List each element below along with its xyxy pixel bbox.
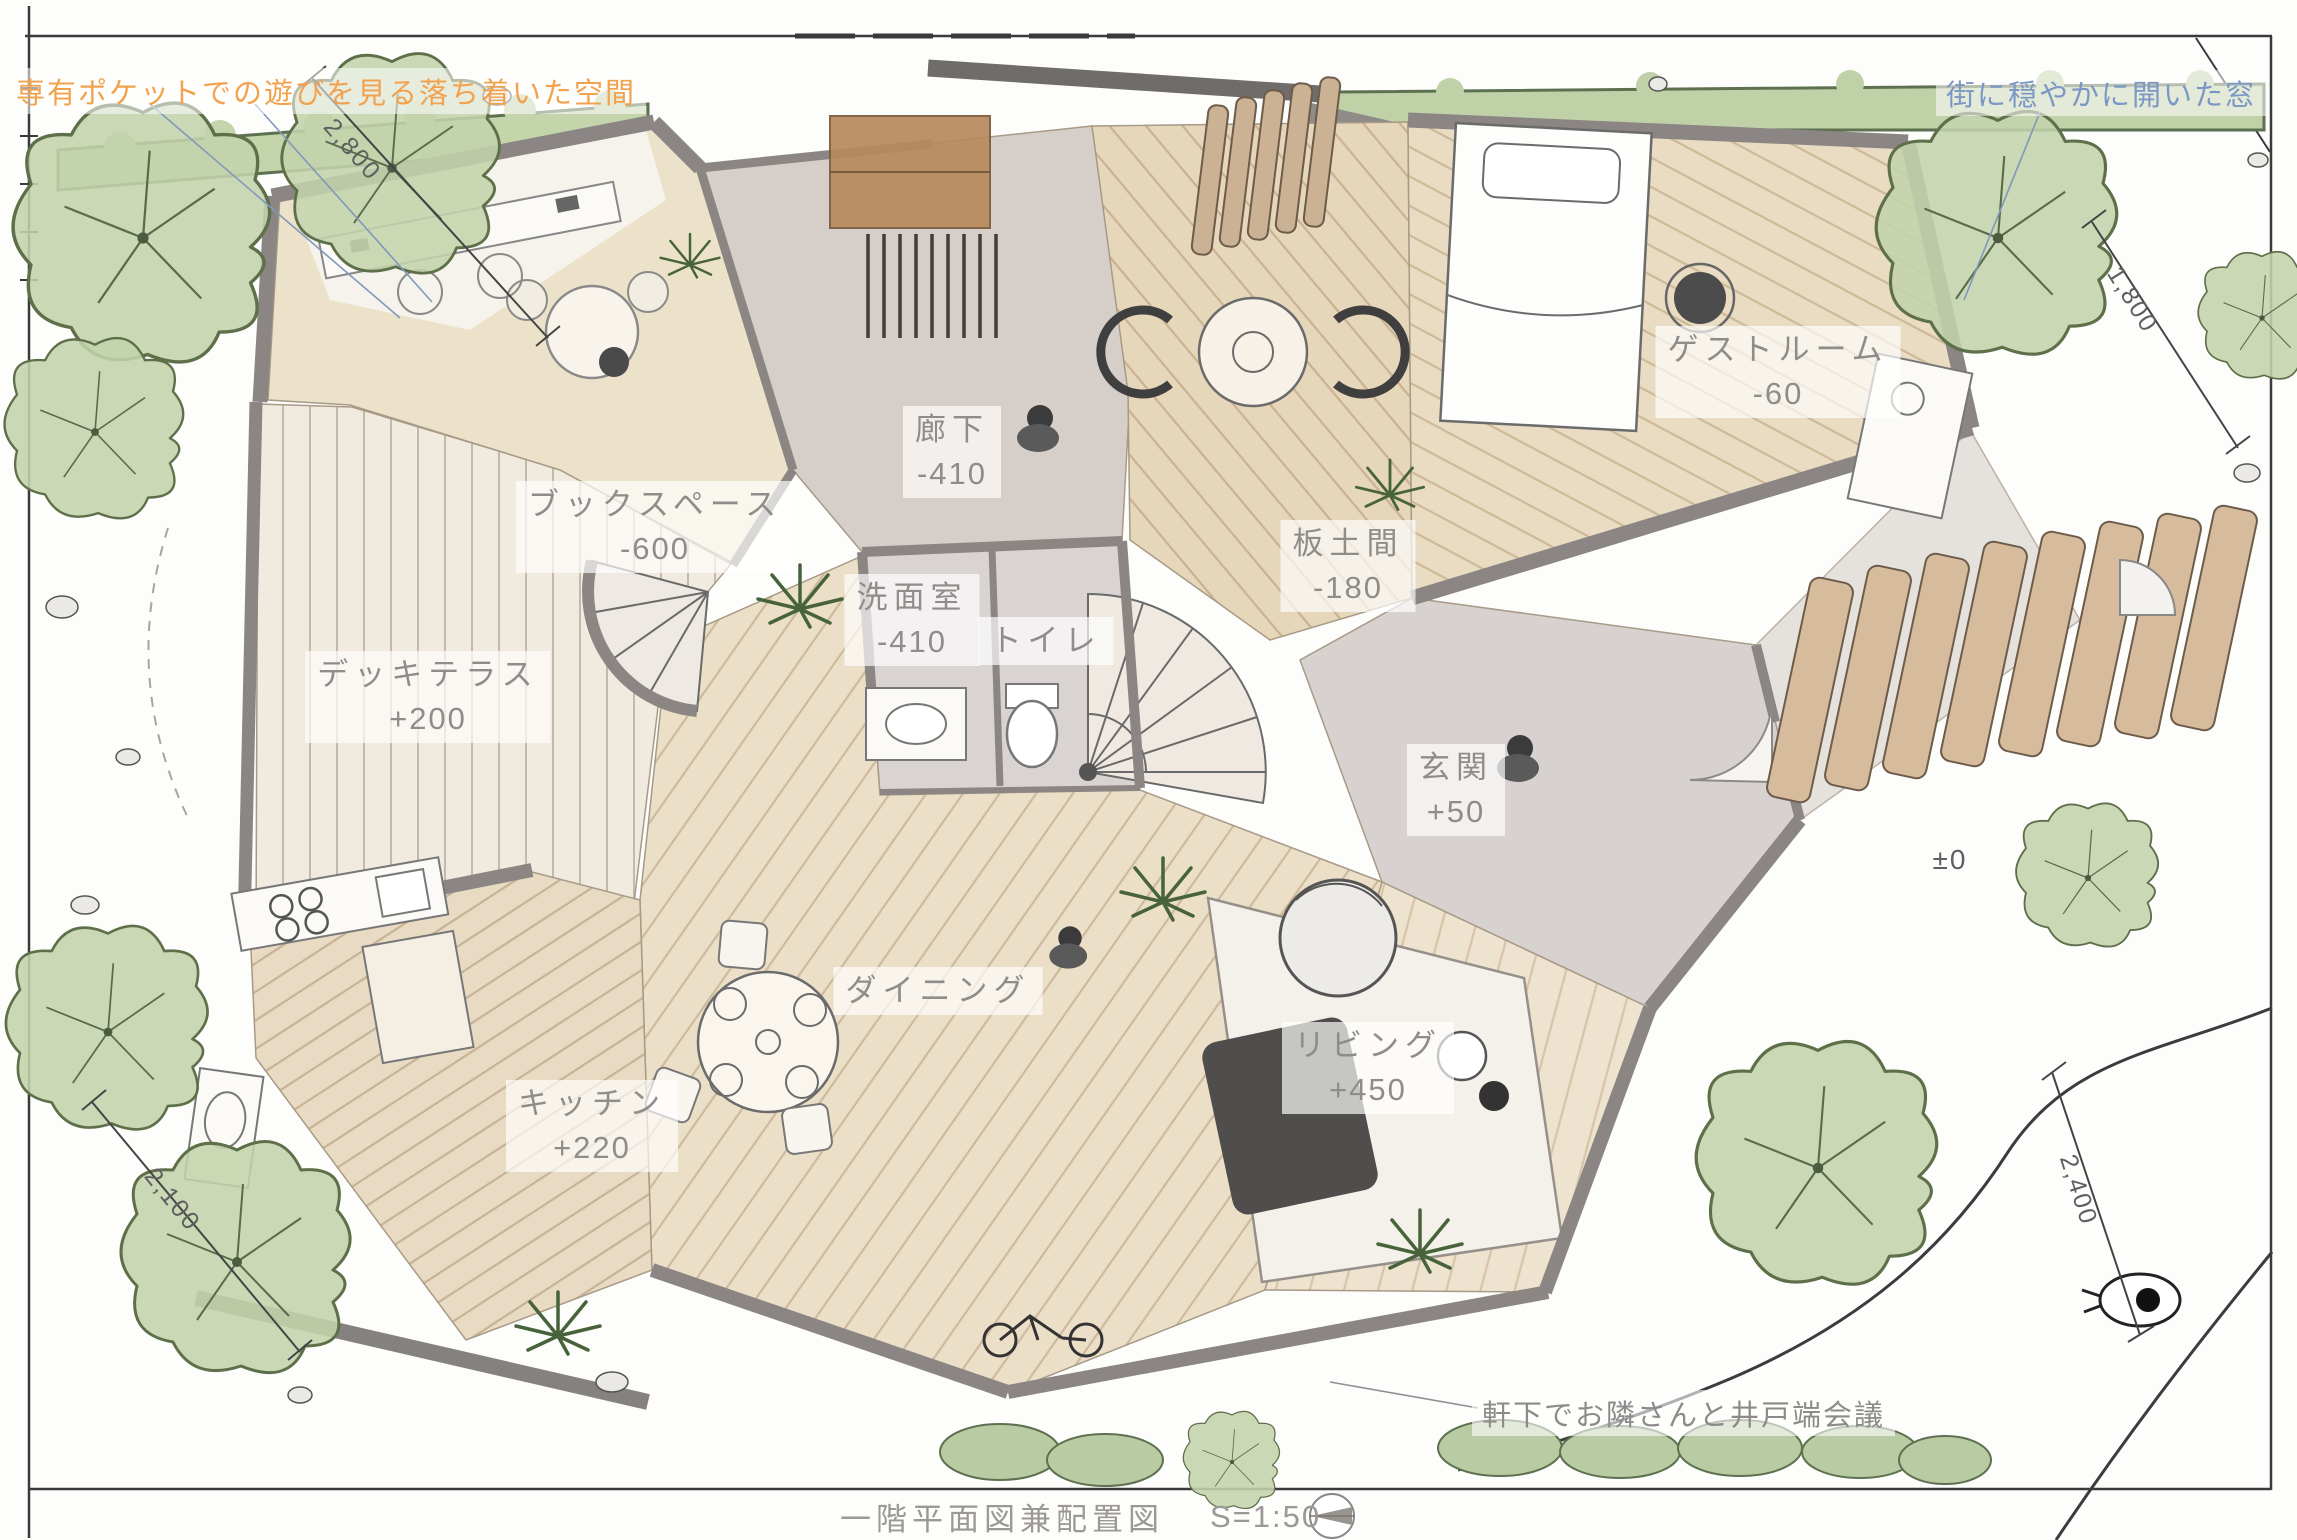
dimension-plusminus0: ±0: [1933, 844, 1968, 876]
room-label-living: リビング +450: [1282, 1022, 1454, 1114]
room-level: +220: [518, 1126, 666, 1170]
room-name: デッキテラス: [317, 653, 538, 697]
room-level: -410: [915, 452, 989, 496]
floor-plan-svg: [0, 0, 2297, 1540]
room-label-washroom: 洗面室 -410: [845, 574, 980, 666]
annotation-pocket-space: 専有ポケットでの遊びを見る落ち着いた空間: [6, 68, 646, 114]
room-level: -410: [857, 620, 968, 664]
room-label-kitchen: キッチン +220: [506, 1080, 678, 1172]
room-label-entrance: 玄関 +50: [1407, 744, 1505, 836]
guest-bed: [1440, 123, 1651, 431]
annotation-eaves-chat: 軒下でお隣さんと井戸端会議: [1472, 1390, 1895, 1436]
room-level: -60: [1667, 372, 1888, 416]
room-label-bookspace: ブックスペース -600: [516, 481, 794, 573]
washroom-fixtures: [866, 684, 1058, 767]
room-label-hall: 廊下 -410: [903, 406, 1001, 498]
room-level: -180: [1293, 566, 1404, 610]
title-block: 一階平面図兼配置図 S=1:50: [840, 1494, 1321, 1539]
room-name: ブックスペース: [528, 483, 782, 527]
room-level: -600: [528, 527, 782, 571]
room-name: リビング: [1294, 1024, 1442, 1068]
room-name: 玄関: [1419, 746, 1493, 790]
floor-plan-sheet: ブックスペース -600 廊下 -410 洗面室 -410 トイレ 板土間 -1…: [0, 0, 2297, 1540]
room-name: ダイニング: [846, 969, 1031, 1013]
annotation-street-window: 街に穏やかに開いた窓: [1936, 70, 2266, 116]
room-level: +200: [317, 697, 538, 741]
room-label-doma: 板土間 -180: [1281, 520, 1416, 612]
room-name: ゲストルーム: [1667, 328, 1888, 372]
room-label-guestroom: ゲストルーム -60: [1655, 326, 1900, 418]
guest-chair: [1674, 272, 1726, 324]
room-name: 廊下: [915, 408, 989, 452]
outdoor-cabinet: [830, 116, 990, 228]
room-label-toilet: トイレ: [979, 617, 1114, 665]
room-name: 板土間: [1293, 522, 1404, 566]
room-name: キッチン: [518, 1082, 666, 1126]
drawing-title: 一階平面図兼配置図: [840, 1494, 1164, 1539]
room-name: 洗面室: [857, 576, 968, 620]
room-label-deck: デッキテラス +200: [305, 651, 550, 743]
room-level: +50: [1419, 790, 1493, 834]
drawing-scale: S=1:50: [1210, 1499, 1321, 1535]
room-name: トイレ: [991, 619, 1102, 663]
room-level: +450: [1294, 1068, 1442, 1112]
room-label-dining: ダイニング: [834, 967, 1043, 1015]
